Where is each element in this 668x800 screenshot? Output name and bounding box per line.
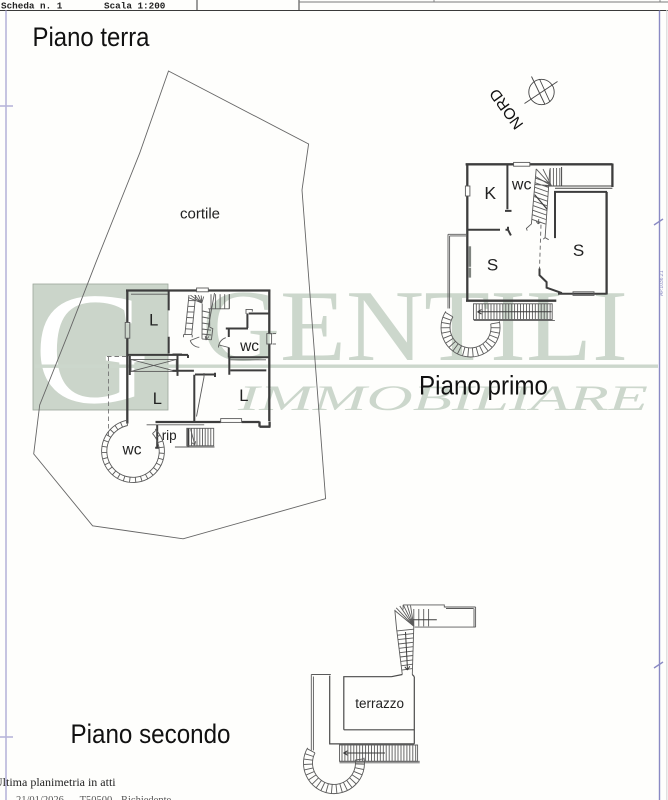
svg-text:S: S: [573, 241, 584, 260]
svg-text:S: S: [487, 255, 498, 274]
svg-text:L: L: [153, 390, 162, 408]
svg-text:rip: rip: [162, 428, 177, 443]
svg-text:wc: wc: [122, 442, 142, 459]
svg-text:G: G: [34, 259, 150, 437]
svg-text:Piano primo: Piano primo: [419, 371, 548, 401]
svg-text:Ultima planimetria in atti: Ultima planimetria in atti: [0, 775, 116, 789]
svg-text:L: L: [149, 311, 158, 329]
svg-text:Piano terra: Piano terra: [33, 22, 150, 52]
svg-text:AP.1036.21: AP.1036.21: [659, 270, 665, 296]
svg-text:Scheda n. 1: Scheda n. 1: [1, 0, 63, 11]
svg-text:L: L: [239, 387, 248, 405]
svg-text:21/01/2026 T50500 - Richi: 21/01/2026 T50500 - Richiedente: [16, 795, 171, 800]
svg-text:NORD: NORD: [487, 85, 528, 132]
svg-text:cortile: cortile: [180, 206, 220, 223]
svg-text:K: K: [484, 183, 496, 203]
svg-text:wc: wc: [511, 177, 532, 194]
svg-text:Scala 1:200: Scala 1:200: [104, 0, 166, 11]
svg-text:terrazzo: terrazzo: [355, 696, 404, 711]
svg-text:wc: wc: [239, 338, 259, 355]
svg-text:Piano secondo: Piano secondo: [71, 719, 231, 749]
